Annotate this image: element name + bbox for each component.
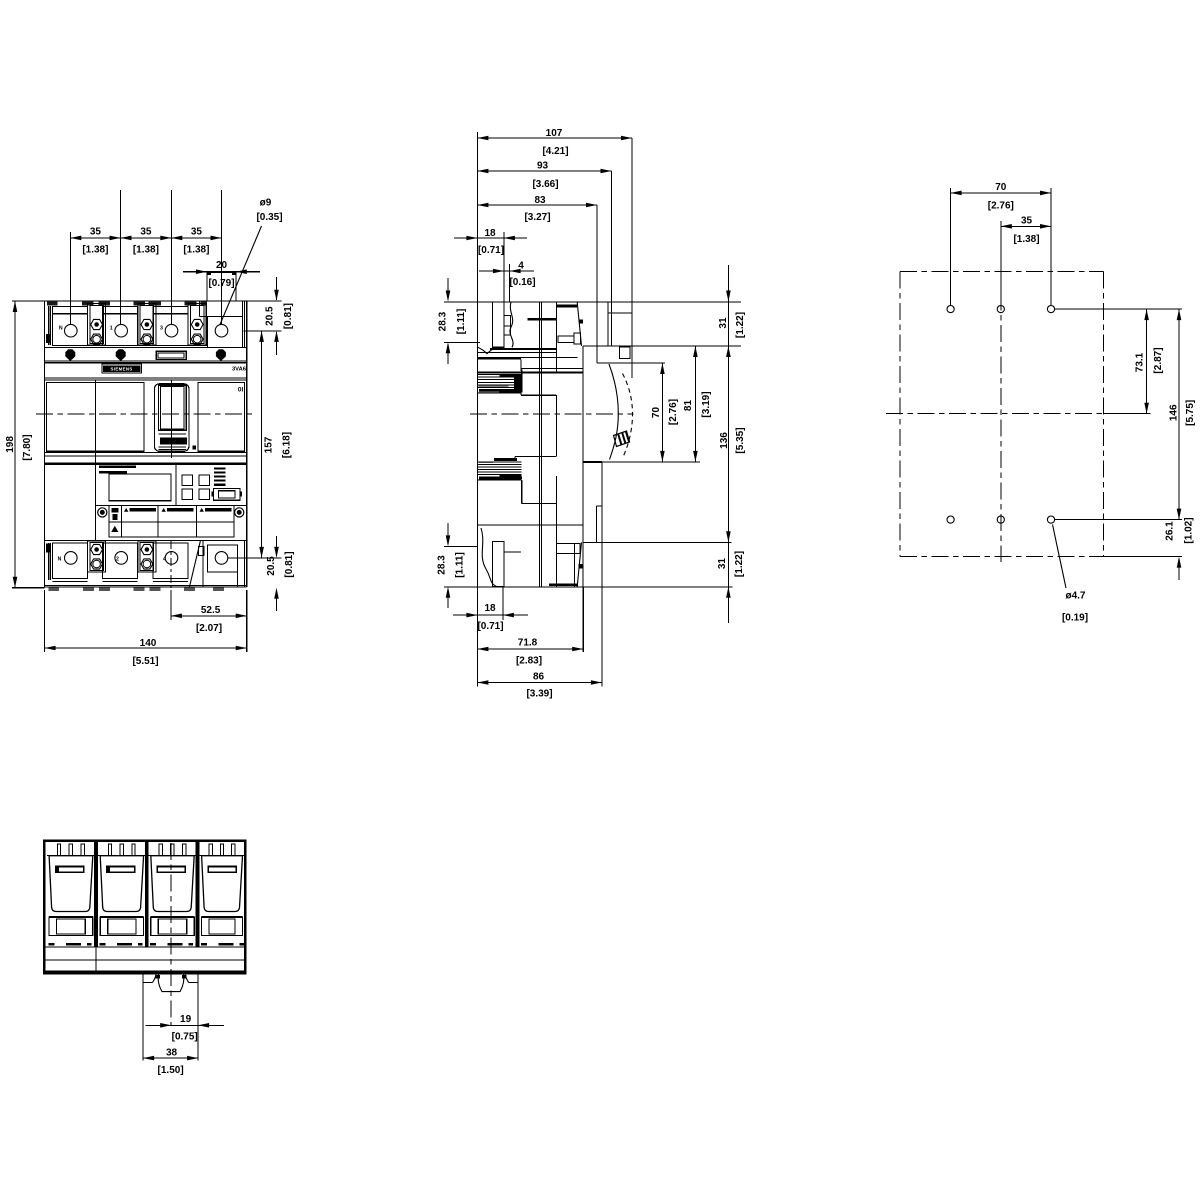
svg-text:[2.76]: [2.76]	[988, 200, 1014, 211]
svg-text:[1.02]: [1.02]	[1184, 517, 1195, 543]
svg-text:1: 1	[110, 326, 113, 332]
svg-text:71.8: 71.8	[518, 637, 538, 648]
svg-text:[0.16]: [0.16]	[509, 277, 535, 288]
svg-text:52.5: 52.5	[201, 605, 221, 616]
svg-text:3: 3	[160, 326, 163, 332]
svg-text:[4.21]: [4.21]	[542, 146, 568, 157]
svg-text:20.5: 20.5	[264, 306, 275, 326]
svg-text:[3.19]: [3.19]	[701, 391, 712, 417]
svg-text:[1.38]: [1.38]	[183, 245, 209, 256]
svg-text:[1.38]: [1.38]	[133, 245, 159, 256]
svg-text:86: 86	[533, 671, 545, 682]
svg-text:N: N	[58, 557, 62, 563]
svg-text:107: 107	[546, 128, 563, 139]
svg-text:[2.76]: [2.76]	[668, 399, 679, 425]
svg-text:3VA6: 3VA6	[232, 366, 247, 372]
svg-text:ø4.7: ø4.7	[1065, 591, 1085, 602]
svg-text:146: 146	[1169, 404, 1180, 421]
svg-text:20.5: 20.5	[266, 556, 277, 576]
svg-text:[2.83]: [2.83]	[516, 655, 542, 666]
svg-text:[1.11]: [1.11]	[455, 552, 466, 578]
svg-text:[5.75]: [5.75]	[1185, 400, 1196, 426]
svg-text:[7.80]: [7.80]	[22, 434, 33, 460]
svg-text:[1.22]: [1.22]	[735, 312, 746, 338]
svg-text:[1.38]: [1.38]	[1013, 234, 1039, 245]
svg-text:[5.51]: [5.51]	[132, 656, 158, 667]
svg-text:136: 136	[719, 432, 730, 449]
svg-text:35: 35	[1021, 216, 1033, 227]
svg-text:[0.71]: [0.71]	[477, 621, 503, 632]
svg-text:140: 140	[140, 638, 157, 649]
svg-text:70: 70	[651, 407, 662, 419]
svg-text:28.3: 28.3	[437, 311, 448, 331]
svg-text:ø9: ø9	[260, 198, 272, 209]
svg-text:[2.07]: [2.07]	[196, 623, 222, 634]
svg-text:26.1: 26.1	[1165, 521, 1176, 541]
svg-text:[1.11]: [1.11]	[456, 309, 467, 335]
svg-text:31: 31	[718, 317, 729, 329]
svg-text:[0.71]: [0.71]	[478, 245, 504, 256]
svg-text:[0.75]: [0.75]	[172, 1032, 198, 1043]
svg-text:18: 18	[484, 228, 496, 239]
svg-text:83: 83	[534, 195, 546, 206]
svg-text:28.3: 28.3	[436, 555, 447, 575]
svg-text:157: 157	[263, 436, 274, 453]
svg-text:[2.87]: [2.87]	[1153, 347, 1164, 373]
svg-text:70: 70	[995, 182, 1007, 193]
svg-text:[3.66]: [3.66]	[532, 179, 558, 190]
svg-text:SIEMENS: SIEMENS	[111, 367, 133, 372]
svg-text:81: 81	[683, 400, 694, 412]
svg-text:35: 35	[90, 227, 102, 238]
svg-text:[3.27]: [3.27]	[524, 212, 550, 223]
svg-text:[5.35]: [5.35]	[735, 427, 746, 453]
svg-text:0I: 0I	[238, 386, 244, 393]
svg-text:20: 20	[216, 260, 228, 271]
svg-text:[0.81]: [0.81]	[283, 303, 294, 329]
svg-text:4: 4	[163, 557, 166, 563]
svg-text:35: 35	[140, 227, 152, 238]
svg-text:[0.19]: [0.19]	[1062, 613, 1088, 624]
svg-text:[1.38]: [1.38]	[82, 245, 108, 256]
svg-text:35: 35	[191, 227, 203, 238]
svg-text:198: 198	[5, 436, 16, 453]
svg-text:N: N	[59, 326, 63, 332]
svg-text:38: 38	[166, 1047, 178, 1058]
svg-text:[0.35]: [0.35]	[256, 212, 282, 223]
svg-text:4: 4	[518, 261, 524, 272]
svg-text:[1.50]: [1.50]	[158, 1065, 184, 1076]
svg-text:19: 19	[180, 1014, 192, 1025]
svg-text:2: 2	[116, 557, 119, 563]
svg-text:93: 93	[537, 161, 549, 172]
svg-text:[6.18]: [6.18]	[282, 432, 293, 458]
svg-text:[0.81]: [0.81]	[284, 551, 295, 577]
svg-text:31: 31	[717, 558, 728, 570]
svg-text:18: 18	[484, 603, 496, 614]
svg-text:73.1: 73.1	[1135, 352, 1146, 372]
svg-text:[1.22]: [1.22]	[734, 551, 745, 577]
svg-text:[3.39]: [3.39]	[526, 689, 552, 700]
